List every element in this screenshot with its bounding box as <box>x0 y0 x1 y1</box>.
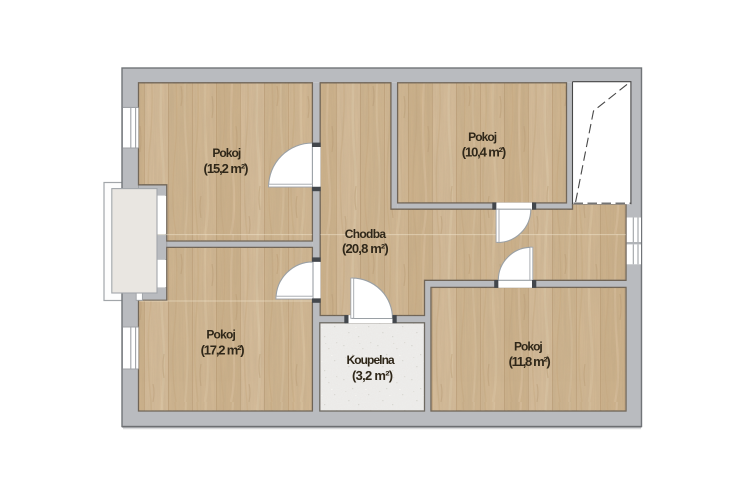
svg-text:(15,2 m²): (15,2 m²) <box>204 161 249 176</box>
svg-text:(17,2 m²): (17,2 m²) <box>201 343 245 358</box>
svg-text:(10,4 m²): (10,4 m²) <box>462 145 506 160</box>
svg-text:Chodba: Chodba <box>345 227 387 241</box>
svg-text:Pokoj: Pokoj <box>212 146 241 160</box>
svg-text:Pokoj: Pokoj <box>206 327 236 341</box>
svg-text:(3,2 m²): (3,2 m²) <box>352 368 393 383</box>
svg-text:Koupelna: Koupelna <box>347 353 395 367</box>
svg-text:(11,8 m²): (11,8 m²) <box>509 354 551 369</box>
svg-text:(20,8 m²): (20,8 m²) <box>342 241 389 256</box>
svg-text:Pokoj: Pokoj <box>468 130 497 144</box>
svg-text:Pokoj: Pokoj <box>514 340 543 354</box>
